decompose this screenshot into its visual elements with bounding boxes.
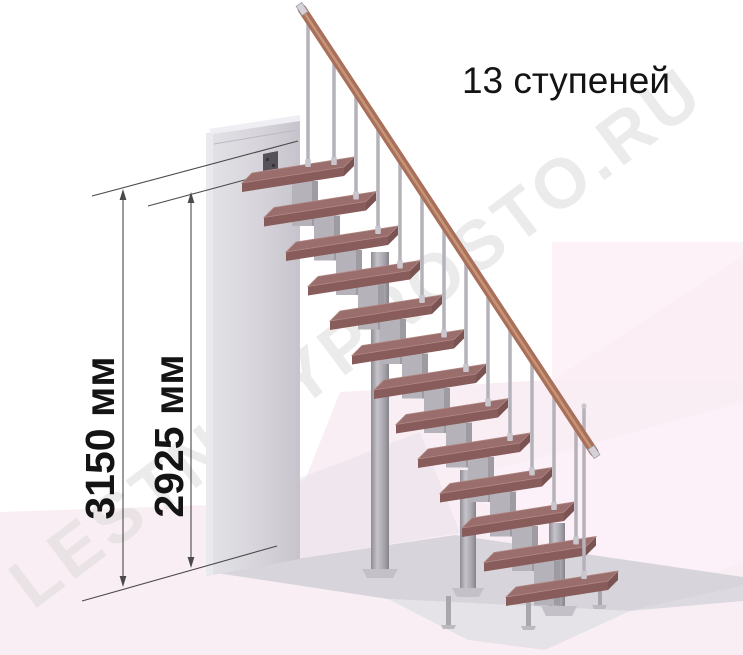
bracket-bolt [266, 158, 269, 161]
baluster-connector [331, 157, 337, 165]
baluster-connector [551, 502, 557, 510]
dimension-label-2925: 2925 мм [146, 354, 192, 517]
baluster-connector [441, 330, 447, 338]
staircase-diagram: LESTNICYPROSTO.RU 3150 мм 2925 [0, 0, 743, 655]
baluster-connector [463, 364, 469, 372]
baluster-connector [375, 226, 381, 234]
baluster-connector [485, 399, 491, 407]
support-leg-foot [592, 605, 607, 609]
support-leg-foot [521, 626, 536, 630]
bracket-bolt [272, 164, 275, 167]
support-leg-foot [441, 625, 456, 629]
wall-left-edge [206, 132, 213, 577]
dimension-label-3150: 3150 мм [77, 356, 123, 519]
baluster-end-cap [581, 403, 586, 408]
support-leg [446, 596, 451, 626]
diagram-canvas: LESTNICYPROSTO.RU 3150 мм 2925 [0, 0, 743, 655]
lower-column-base [541, 606, 577, 616]
steps-count-label: 13 ступеней [462, 60, 670, 101]
baluster-connector [397, 261, 403, 269]
baluster-connector [419, 295, 425, 303]
central-column-base [362, 569, 398, 578]
mid-column-base [452, 588, 484, 597]
baluster-connector [573, 537, 579, 545]
baluster-connector [507, 433, 513, 441]
baluster-connector [305, 159, 311, 167]
baluster-connector [353, 192, 359, 200]
baluster-connector [529, 468, 535, 476]
baluster-connector [581, 571, 587, 579]
